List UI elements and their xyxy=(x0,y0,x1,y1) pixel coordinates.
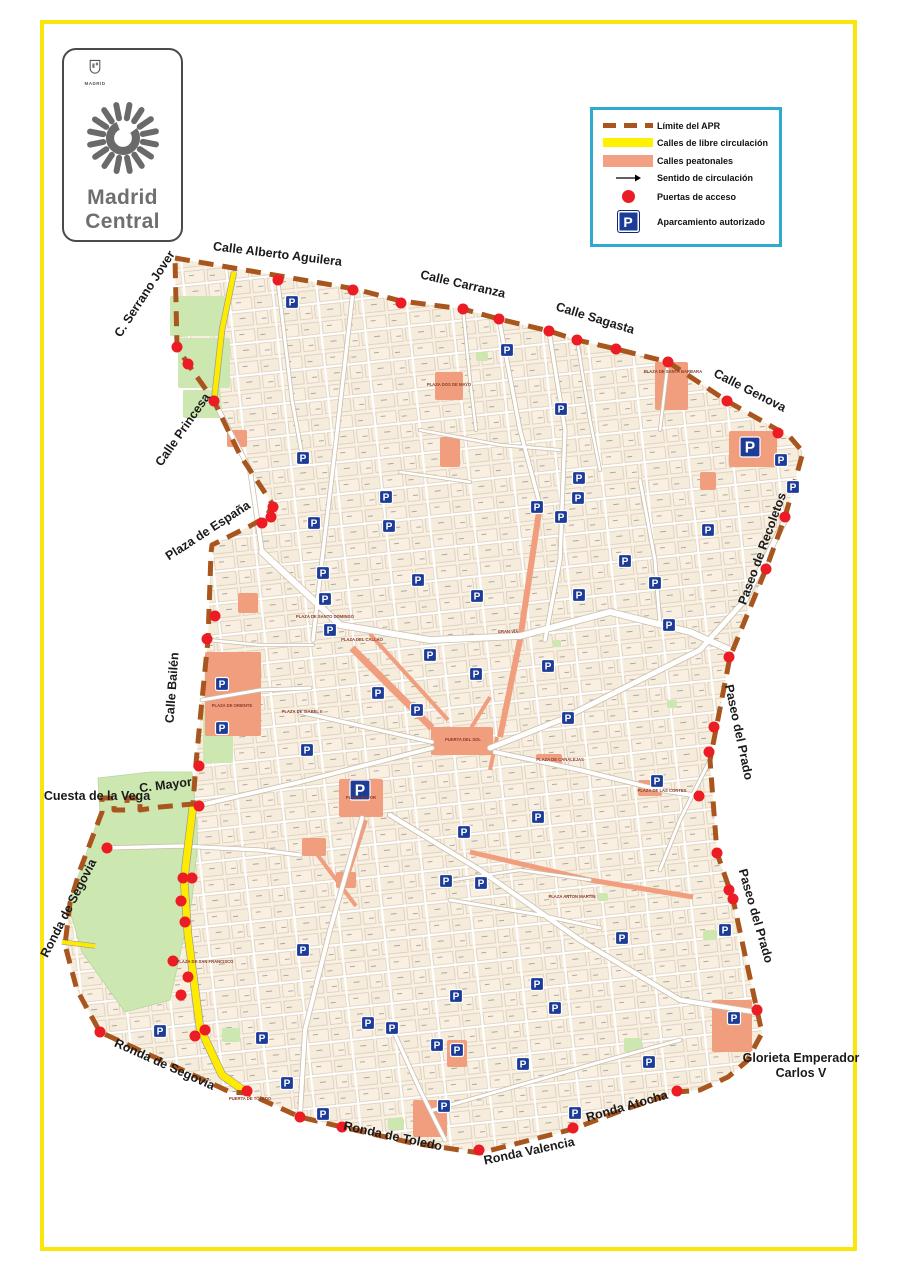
parking-icon: P xyxy=(458,826,471,839)
svg-text:P: P xyxy=(441,1102,448,1113)
svg-text:P: P xyxy=(365,1019,372,1030)
svg-text:P: P xyxy=(389,1024,396,1035)
street-label: Calle Alberto Aguilera xyxy=(212,239,343,269)
parking-icon: P xyxy=(317,567,330,580)
park-area xyxy=(553,640,561,647)
svg-text:P: P xyxy=(778,456,785,467)
access-gate-dot xyxy=(568,1123,579,1134)
crest-city-label: MADRID xyxy=(80,81,110,86)
street-label: C. Serrano Jover xyxy=(112,248,178,340)
parking-icon: P xyxy=(555,511,568,524)
street-label: Cuesta de la Vega xyxy=(44,789,151,803)
parking-icon: P xyxy=(517,1058,530,1071)
apr-limit-dash-icon xyxy=(599,123,657,128)
parking-icon: P xyxy=(451,1044,464,1057)
access-gate-dot xyxy=(95,1027,106,1038)
svg-text:P: P xyxy=(654,777,661,788)
access-gate-dot xyxy=(210,611,221,622)
parking-icon: P xyxy=(308,517,321,530)
svg-text:P: P xyxy=(320,1110,327,1121)
svg-text:P: P xyxy=(535,813,542,824)
place-label: PLAZA DEL CALLAO xyxy=(341,637,384,642)
svg-text:P: P xyxy=(504,346,511,357)
parking-icon: P xyxy=(643,1056,656,1069)
legend-item-access-gates: Puertas de acceso xyxy=(599,190,773,203)
svg-text:P: P xyxy=(454,1046,461,1057)
svg-text:P: P xyxy=(304,746,311,757)
svg-text:P: P xyxy=(705,526,712,537)
parking-icon: P xyxy=(154,1025,167,1038)
parking-icon: P xyxy=(775,454,788,467)
svg-text:P: P xyxy=(300,946,307,957)
svg-text:P: P xyxy=(375,689,382,700)
street-label: Calle Carranza xyxy=(419,268,508,301)
access-gate-dot xyxy=(724,652,735,663)
access-gate-dot xyxy=(273,275,284,286)
legend: Límite del APR Calles de libre circulaci… xyxy=(590,107,782,247)
parking-icon: P xyxy=(431,1039,444,1052)
madrid-central-sun-icon xyxy=(75,90,171,191)
parking-icon: P xyxy=(372,687,385,700)
legend-label: Límite del APR xyxy=(657,121,720,131)
parking-icon: P xyxy=(562,712,575,725)
parking-icon: P xyxy=(286,296,299,309)
parking-icon: P xyxy=(573,589,586,602)
access-gate-dot xyxy=(752,1005,763,1016)
parking-icon: P xyxy=(549,1002,562,1015)
parking-icon: P xyxy=(438,1100,451,1113)
access-gate-dot xyxy=(694,791,705,802)
parking-icon: P xyxy=(450,990,463,1003)
svg-text:P: P xyxy=(745,440,755,457)
street-label: Calle Bailén xyxy=(163,652,182,724)
svg-text:P: P xyxy=(289,298,296,309)
access-gate-dot xyxy=(176,896,187,907)
access-gate-dot xyxy=(704,747,715,758)
madrid-central-logo-card: MADRID Madrid Central xyxy=(62,48,183,242)
access-gate-dot xyxy=(172,342,183,353)
parking-sign-icon: P xyxy=(599,210,657,233)
parking-icon: P xyxy=(256,1032,269,1045)
legend-label: Calles peatonales xyxy=(657,156,733,166)
access-gate-dot xyxy=(190,1031,201,1042)
access-gate-dot xyxy=(396,298,407,309)
access-gate-dot xyxy=(194,801,205,812)
parking-icon: P xyxy=(281,1077,294,1090)
svg-text:P: P xyxy=(386,522,393,533)
svg-text:P: P xyxy=(300,454,307,465)
parking-icon: P xyxy=(619,555,632,568)
access-gate-dot xyxy=(348,285,359,296)
place-label: PLAZA DE SANTA BARBARA xyxy=(644,369,702,374)
access-gate-dot xyxy=(611,344,622,355)
parking-icon: P xyxy=(297,452,310,465)
parking-icon: P xyxy=(301,744,314,757)
access-gate-dot xyxy=(494,314,505,325)
parking-icon: P xyxy=(297,944,310,957)
parking-icon: P xyxy=(572,492,585,505)
svg-text:P: P xyxy=(790,483,797,494)
place-label: PLAZA DE ORIENTE xyxy=(212,703,253,708)
park-area xyxy=(703,930,717,940)
svg-text:P: P xyxy=(652,579,659,590)
legend-item-direction: Sentido de circulación xyxy=(599,173,773,183)
free-circulation-bar-icon xyxy=(599,138,657,147)
parking-icon: P xyxy=(616,932,629,945)
svg-text:P: P xyxy=(552,1004,559,1015)
access-gate-dot xyxy=(183,972,194,983)
svg-text:P: P xyxy=(311,519,318,530)
parking-icon: P xyxy=(740,437,760,457)
pedestrian-bar-icon xyxy=(599,155,657,167)
svg-text:P: P xyxy=(473,670,480,681)
access-gate-dot xyxy=(572,335,583,346)
parking-icon: P xyxy=(728,1012,741,1025)
access-gate-dot xyxy=(242,1086,253,1097)
svg-text:P: P xyxy=(415,576,422,587)
street-label: Glorieta Emperador xyxy=(743,1051,860,1065)
direction-arrow-icon xyxy=(599,173,657,183)
street-label: Carlos V xyxy=(776,1066,827,1080)
svg-text:P: P xyxy=(320,569,327,580)
svg-text:P: P xyxy=(520,1060,527,1071)
svg-text:P: P xyxy=(219,680,226,691)
svg-text:P: P xyxy=(622,557,629,568)
park-area xyxy=(476,352,488,361)
access-gate-dot xyxy=(268,502,279,513)
access-gate-dot xyxy=(295,1112,306,1123)
access-gate-dot xyxy=(663,357,674,368)
parking-icon: P xyxy=(386,1022,399,1035)
parking-icon: P xyxy=(569,1107,582,1120)
svg-text:P: P xyxy=(322,595,329,606)
svg-text:P: P xyxy=(327,626,334,637)
parking-icon: P xyxy=(649,577,662,590)
svg-text:P: P xyxy=(434,1041,441,1052)
access-gate-dot xyxy=(728,894,739,905)
parking-icon: P xyxy=(475,877,488,890)
legend-item-authorized-parking: P Aparcamiento autorizado xyxy=(599,210,773,233)
parking-icon: P xyxy=(555,403,568,416)
park-area xyxy=(598,893,608,901)
parking-icon: P xyxy=(362,1017,375,1030)
svg-text:P: P xyxy=(219,724,226,735)
svg-text:P: P xyxy=(453,992,460,1003)
parking-icon: P xyxy=(573,472,586,485)
access-gate-dot xyxy=(194,761,205,772)
legend-label: Sentido de circulación xyxy=(657,173,753,183)
access-gate-dot xyxy=(202,634,213,645)
access-gate-dot xyxy=(458,304,469,315)
street-label: Calle Sagasta xyxy=(554,300,637,337)
legend-label: Puertas de acceso xyxy=(657,192,736,202)
svg-text:P: P xyxy=(558,405,565,416)
svg-text:P: P xyxy=(576,591,583,602)
legend-item-apr-limit: Límite del APR xyxy=(599,121,773,131)
access-gate-dot xyxy=(773,428,784,439)
logo-title: Madrid Central xyxy=(64,186,181,234)
legend-label: Aparcamiento autorizado xyxy=(657,217,765,227)
parking-icon: P xyxy=(424,649,437,662)
access-gate-dot xyxy=(722,396,733,407)
parking-icon: P xyxy=(719,924,732,937)
svg-text:P: P xyxy=(443,877,450,888)
access-gate-dot xyxy=(200,1025,211,1036)
svg-text:P: P xyxy=(565,714,572,725)
svg-text:P: P xyxy=(414,706,421,717)
svg-text:P: P xyxy=(474,592,481,603)
svg-text:P: P xyxy=(478,879,485,890)
svg-text:P: P xyxy=(545,662,552,673)
svg-text:P: P xyxy=(572,1109,579,1120)
place-label: PLAZA DOS DE MAYO xyxy=(427,382,472,387)
svg-text:P: P xyxy=(575,494,582,505)
parking-icon: P xyxy=(440,875,453,888)
parking-icon: P xyxy=(501,344,514,357)
svg-text:P: P xyxy=(461,828,468,839)
parking-icon: P xyxy=(787,481,800,494)
pedestrian-zone xyxy=(238,593,258,613)
park-area xyxy=(667,700,677,708)
access-gate-dot xyxy=(257,518,268,529)
parking-icon: P xyxy=(324,624,337,637)
parking-icon: P xyxy=(383,520,396,533)
svg-text:P: P xyxy=(646,1058,653,1069)
place-label: PUERTA DEL SOL xyxy=(445,737,481,742)
svg-text:P: P xyxy=(284,1079,291,1090)
madrid-city-crest: MADRID xyxy=(80,59,110,86)
access-gate-dot xyxy=(672,1086,683,1097)
logo-title-line2: Central xyxy=(64,210,181,234)
svg-text:P: P xyxy=(383,493,390,504)
access-gate-dot xyxy=(180,917,191,928)
access-gate-dot xyxy=(187,873,198,884)
parking-icon: P xyxy=(663,619,676,632)
parking-icon: P xyxy=(702,524,715,537)
access-gate-dot xyxy=(176,990,187,1001)
svg-text:P: P xyxy=(157,1027,164,1038)
parking-icon: P xyxy=(317,1108,330,1121)
place-label: PUERTA DE TOLEDO xyxy=(229,1096,272,1101)
parking-icon: P xyxy=(411,704,424,717)
place-label: PLAZA DE SANTO DOMINGO xyxy=(296,614,355,619)
access-gate-dot xyxy=(102,843,113,854)
parking-icon: P xyxy=(651,775,664,788)
parking-icon: P xyxy=(531,978,544,991)
place-label: PLAZA DE ISABEL II xyxy=(282,709,323,714)
pedestrian-zone xyxy=(700,472,716,490)
access-gate-dot xyxy=(266,512,277,523)
pedestrian-zone xyxy=(440,437,460,467)
legend-item-pedestrian: Calles peatonales xyxy=(599,155,773,167)
access-gate-dot xyxy=(712,848,723,859)
place-label: PLAZA ANTON MARTIN xyxy=(548,894,595,899)
svg-text:P: P xyxy=(427,651,434,662)
parking-icon: P xyxy=(542,660,555,673)
svg-text:P: P xyxy=(558,513,565,524)
logo-title-line1: Madrid xyxy=(64,186,181,210)
access-gate-dot xyxy=(709,722,720,733)
svg-text:P: P xyxy=(619,934,626,945)
place-label: PLAZA DE CANALEJAS xyxy=(536,757,584,762)
legend-label: Calles de libre circulación xyxy=(657,138,768,148)
svg-text:P: P xyxy=(534,503,541,514)
parking-icon: P xyxy=(532,811,545,824)
access-gate-dot xyxy=(544,326,555,337)
place-label: PLAZA MAYOR xyxy=(346,795,376,800)
access-gate-dot xyxy=(183,359,194,370)
parking-icon: P xyxy=(319,593,332,606)
access-gate-dot-icon xyxy=(599,190,657,203)
parking-icon: P xyxy=(216,722,229,735)
parking-icon: P xyxy=(380,491,393,504)
place-label: GRAN VIA xyxy=(498,629,518,634)
legend-item-free-circulation: Calles de libre circulación xyxy=(599,138,773,148)
svg-text:P: P xyxy=(666,621,673,632)
park-area xyxy=(222,1028,240,1042)
svg-text:P: P xyxy=(722,926,729,937)
parking-icon: P xyxy=(470,668,483,681)
street-label: Paseo del Prado xyxy=(722,683,756,781)
place-label: PLAZA DE LAS CORTES xyxy=(638,788,687,793)
madrid-crest-icon xyxy=(88,59,102,75)
parking-icon: P xyxy=(531,501,544,514)
parking-icon: P xyxy=(471,590,484,603)
svg-text:P: P xyxy=(576,474,583,485)
parking-icon: P xyxy=(216,678,229,691)
parking-icon: P xyxy=(412,574,425,587)
svg-text:P: P xyxy=(534,980,541,991)
svg-text:P: P xyxy=(259,1034,266,1045)
svg-text:P: P xyxy=(731,1014,738,1025)
place-label: PLAZA DE SAN FRANCISCO xyxy=(177,959,235,964)
